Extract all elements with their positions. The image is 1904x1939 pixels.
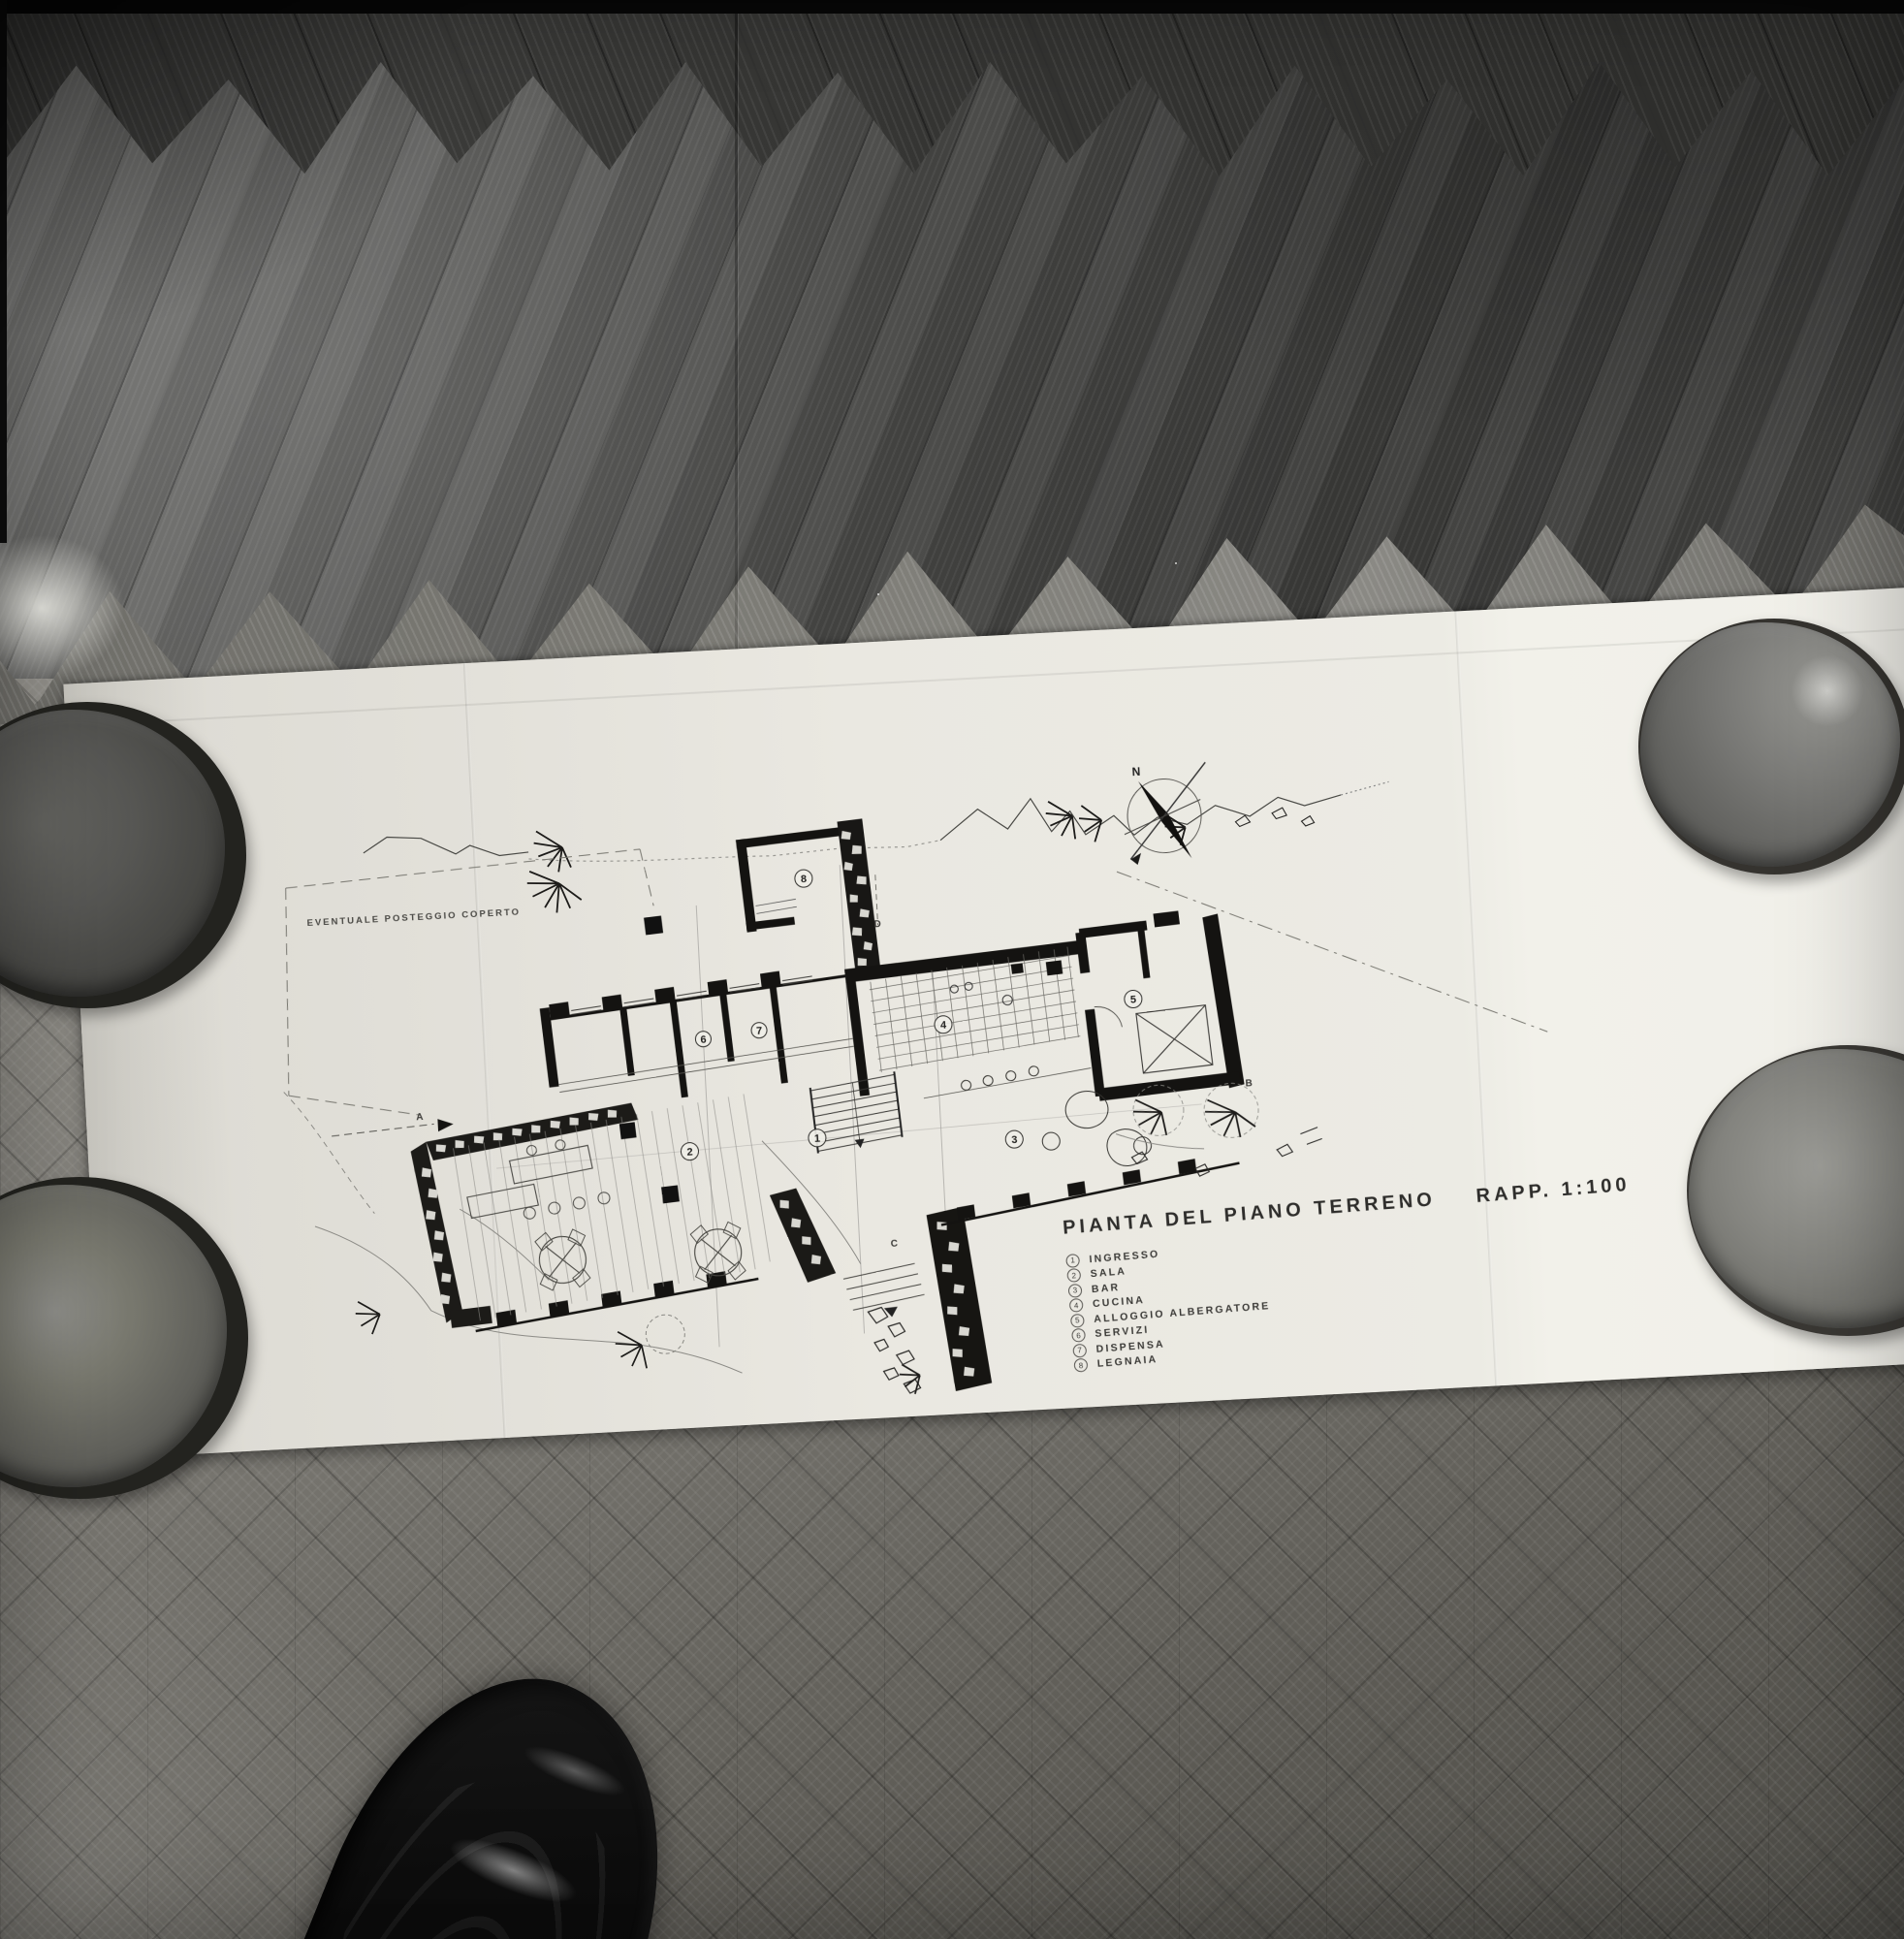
room-number: 6 [700, 1034, 707, 1046]
room-number: 1 [814, 1133, 821, 1145]
column [661, 1185, 680, 1203]
legend-number: 5 [1070, 1314, 1085, 1328]
bar-chairs [960, 1053, 1153, 1185]
legend-number: 4 [1069, 1298, 1084, 1313]
north-label: N [1131, 765, 1140, 779]
paperweight-bowl-bottom-left [0, 1185, 227, 1487]
legend-number: 7 [1072, 1343, 1087, 1357]
room-number: 7 [756, 1026, 763, 1037]
dust-specks [877, 593, 879, 595]
rock-scribbles-top [1235, 806, 1315, 829]
room-number: 5 [1130, 994, 1137, 1005]
room-numbers: 1 2 3 4 5 6 7 8 [667, 852, 1150, 1165]
bowl-dish [1640, 622, 1900, 867]
column [644, 915, 663, 935]
section-letter: C [890, 1239, 898, 1250]
contour-lines [284, 1063, 867, 1396]
floorboard-hatch [451, 1094, 773, 1321]
exterior-steps [842, 1262, 925, 1311]
section-letter: D [873, 919, 881, 930]
north-compass: N [1121, 761, 1210, 865]
paperweight-bowl-top-right [1640, 622, 1900, 867]
legend-label: BAR [1091, 1282, 1120, 1295]
room-number: 8 [801, 874, 808, 885]
room-5-walls [1074, 906, 1245, 1104]
column [619, 1122, 637, 1139]
round-table-x [534, 1227, 591, 1291]
rock-path [868, 1306, 921, 1396]
section-letter: A [416, 1112, 424, 1123]
film-frame-edge [0, 0, 1904, 14]
legend-number: 8 [1073, 1358, 1088, 1373]
plan-legend: 1INGRESSO 2SALA 3BAR 4CUCINA 5ALLOGGIO A… [1065, 1238, 1275, 1373]
photograph: EVENTUALE POSTEGGIO COPERTO N [0, 0, 1904, 1939]
bed-furniture [1136, 1005, 1213, 1073]
floor-plan-drawing: EVENTUALE POSTEGGIO COPERTO N [63, 587, 1904, 1458]
legend-number: 2 [1066, 1268, 1081, 1283]
room-number: 2 [686, 1146, 693, 1158]
bowl-dish [1689, 1049, 1904, 1328]
film-frame-edge [0, 0, 7, 543]
window-piers-top [549, 970, 782, 1019]
pier-stubs-hall [494, 1271, 729, 1326]
legend-label: LEGNAIA [1096, 1353, 1158, 1370]
legend-label: SALA [1090, 1266, 1127, 1281]
site-note: EVENTUALE POSTEGGIO COPERTO [306, 906, 521, 929]
plank-seam [735, 10, 738, 650]
tree-canopy [645, 1314, 685, 1354]
legend-number: 3 [1067, 1284, 1082, 1298]
rubble-wall [769, 1185, 837, 1286]
legend-number: 1 [1065, 1254, 1080, 1268]
legend-number: 6 [1071, 1328, 1086, 1343]
floor-plan-sheet: EVENTUALE POSTEGGIO COPERTO N [63, 587, 1904, 1458]
paperweight-bowl-top-left [0, 710, 225, 997]
rubble-wall [837, 818, 880, 973]
room-number: 3 [1011, 1134, 1018, 1146]
paperweight-bowl-bottom-right [1689, 1049, 1904, 1328]
rubble-pier [926, 1206, 993, 1392]
